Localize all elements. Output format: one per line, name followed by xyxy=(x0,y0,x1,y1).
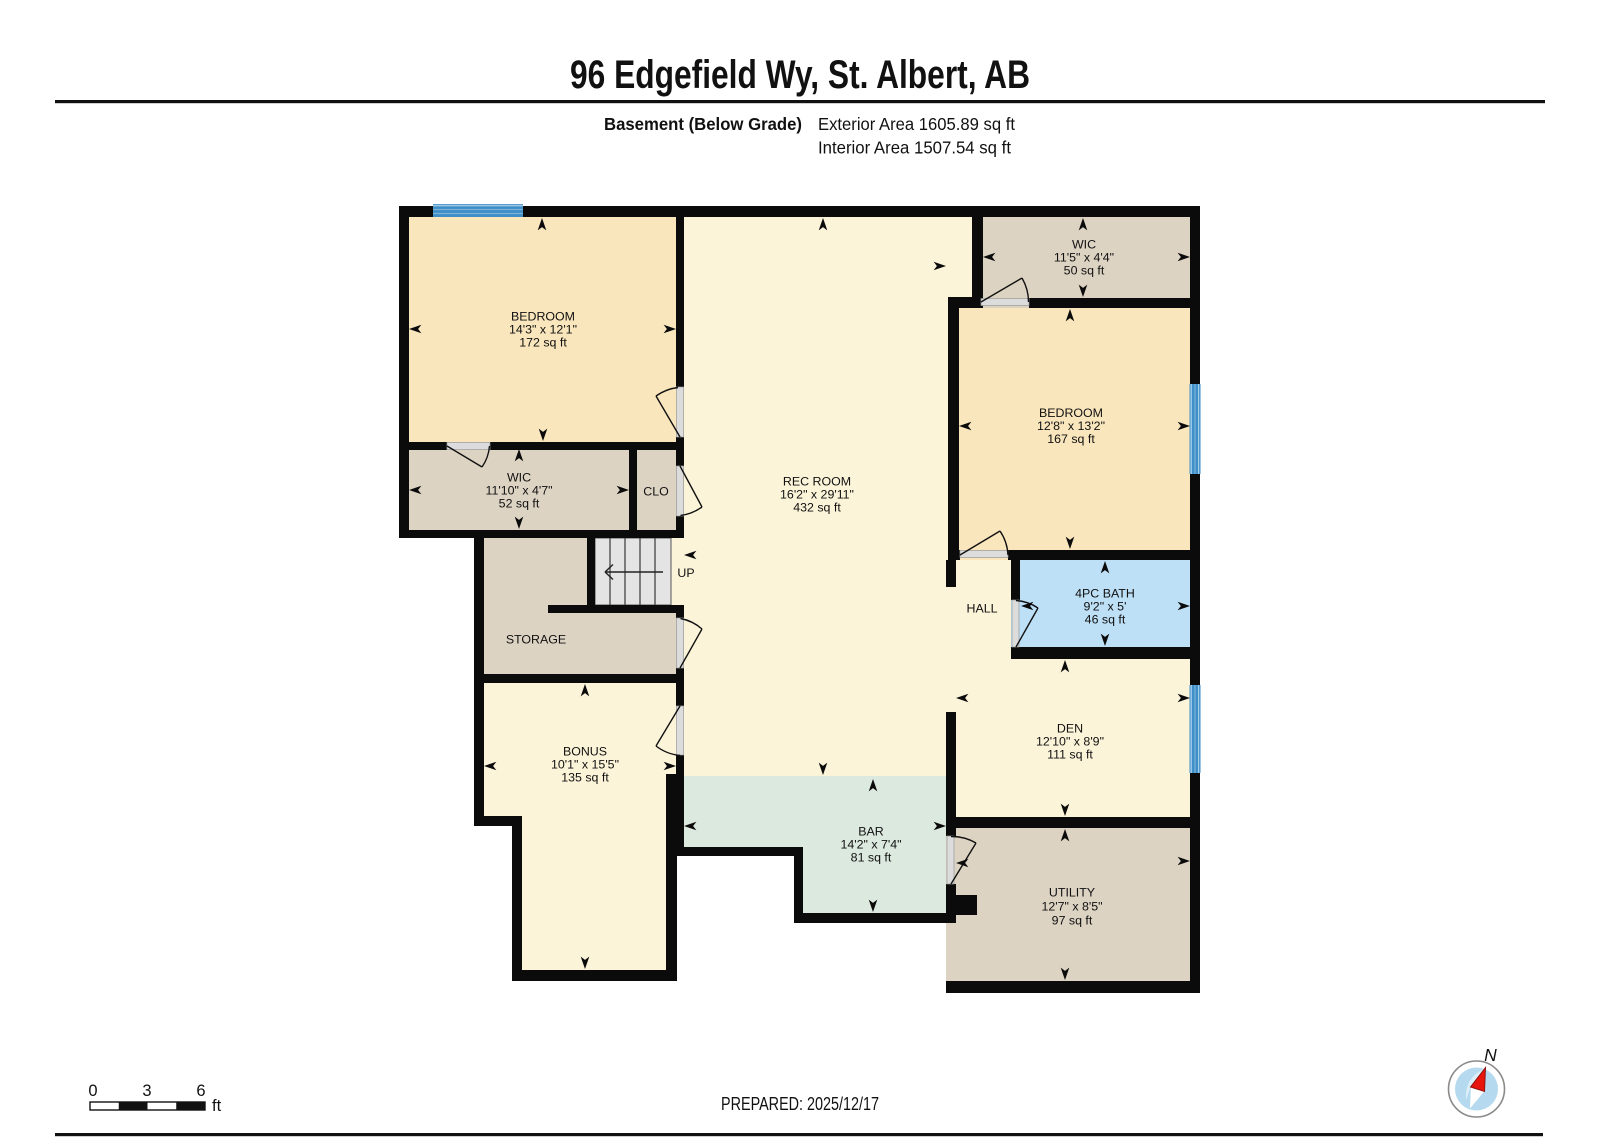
svg-text:11'5" x 4'4": 11'5" x 4'4" xyxy=(1054,251,1114,265)
svg-text:12'10" x 8'9": 12'10" x 8'9" xyxy=(1036,735,1104,749)
svg-text:STORAGE: STORAGE xyxy=(506,633,566,647)
svg-text:11'10" x 4'7": 11'10" x 4'7" xyxy=(485,484,552,498)
svg-text:96 Edgefield Wy, St. Albert, A: 96 Edgefield Wy, St. Albert, AB xyxy=(570,53,1030,97)
svg-text:Interior Area 1507.54 sq ft: Interior Area 1507.54 sq ft xyxy=(818,138,1011,158)
svg-text:BONUS: BONUS xyxy=(563,745,607,759)
svg-text:14'2" x 7'4": 14'2" x 7'4" xyxy=(840,838,901,852)
svg-text:172 sq ft: 172 sq ft xyxy=(519,336,567,350)
svg-text:Exterior Area 1605.89 sq ft: Exterior Area 1605.89 sq ft xyxy=(818,114,1015,134)
svg-text:WIC: WIC xyxy=(507,471,531,485)
svg-text:Basement (Below Grade): Basement (Below Grade) xyxy=(604,114,802,134)
svg-text:CLO: CLO xyxy=(643,485,669,499)
svg-text:HALL: HALL xyxy=(967,602,998,616)
svg-text:14'3" x 12'1": 14'3" x 12'1" xyxy=(509,323,577,337)
svg-text:UP: UP xyxy=(677,566,694,580)
svg-text:52 sq ft: 52 sq ft xyxy=(499,497,540,511)
svg-text:N: N xyxy=(1484,1045,1497,1065)
svg-text:97 sq ft: 97 sq ft xyxy=(1052,914,1093,928)
svg-text:10'1" x 15'5": 10'1" x 15'5" xyxy=(551,758,619,772)
svg-text:REC ROOM: REC ROOM xyxy=(783,475,851,489)
svg-text:3: 3 xyxy=(142,1082,151,1100)
svg-text:111 sq ft: 111 sq ft xyxy=(1047,748,1093,762)
svg-text:UTILITY: UTILITY xyxy=(1049,886,1095,900)
svg-text:DEN: DEN xyxy=(1057,722,1083,736)
svg-text:12'8" x 13'2": 12'8" x 13'2" xyxy=(1037,419,1105,433)
svg-text:BAR: BAR xyxy=(858,825,884,839)
svg-text:135 sq ft: 135 sq ft xyxy=(561,771,609,785)
svg-text:WIC: WIC xyxy=(1072,238,1096,252)
svg-text:BEDROOM: BEDROOM xyxy=(1039,406,1103,420)
svg-text:432 sq ft: 432 sq ft xyxy=(793,501,841,515)
svg-text:50 sq ft: 50 sq ft xyxy=(1064,264,1105,278)
svg-text:PREPARED: 2025/12/17: PREPARED: 2025/12/17 xyxy=(721,1093,879,1114)
svg-text:4PC BATH: 4PC BATH xyxy=(1075,587,1135,601)
svg-text:81 sq ft: 81 sq ft xyxy=(851,851,892,865)
svg-text:46 sq ft: 46 sq ft xyxy=(1085,613,1126,627)
svg-text:167 sq ft: 167 sq ft xyxy=(1047,432,1095,446)
svg-text:ft: ft xyxy=(212,1097,222,1115)
svg-text:9'2" x 5': 9'2" x 5' xyxy=(1084,600,1127,614)
svg-text:6: 6 xyxy=(196,1082,205,1100)
svg-text:16'2" x 29'11": 16'2" x 29'11" xyxy=(780,488,854,502)
svg-text:BEDROOM: BEDROOM xyxy=(511,310,575,324)
svg-text:12'7" x 8'5": 12'7" x 8'5" xyxy=(1041,900,1102,914)
svg-text:0: 0 xyxy=(88,1082,97,1100)
